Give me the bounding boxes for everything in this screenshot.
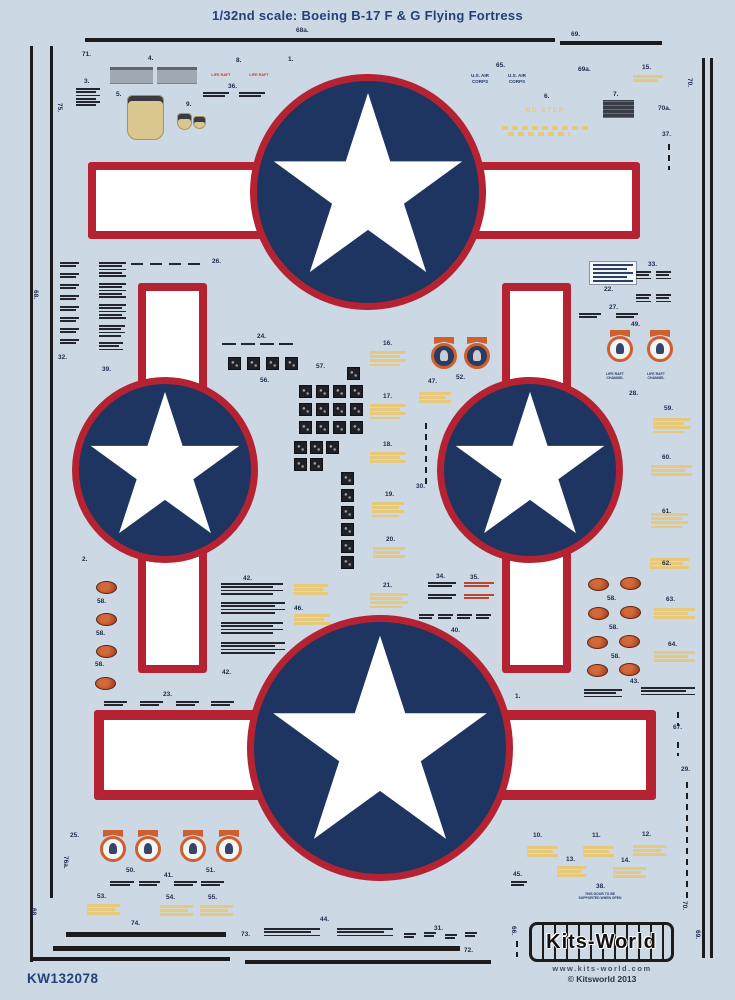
part-number-label: 35. [470,575,479,582]
part-number-label: 5. [116,92,121,99]
yellow-stencil-block [527,846,558,859]
black-square-decal [341,506,354,519]
yellow-stencil-block [294,614,330,627]
part-number-label: 22. [604,287,613,294]
micro-text-block [465,932,477,939]
part-number-label: 49. [631,322,640,329]
trim-line [50,46,53,898]
life-ring-emblem [646,330,674,368]
life-ring-emblem [606,330,634,368]
black-square-decal [285,357,298,370]
sheet-code: KW132078 [27,971,99,986]
yellow-stencil-block [370,593,408,610]
part-number-label: 24. [257,334,266,341]
part-number-label: 33. [648,262,657,269]
part-number-label: 16. [383,341,392,348]
part-number-label: 38. [596,884,605,891]
life-ring-emblem [430,337,458,375]
decal-oval [620,577,641,590]
tan-decal-rect [177,113,192,130]
life-ring-emblem [99,830,127,868]
micro-text-block [424,932,436,939]
part-number-label: 20. [386,537,395,544]
black-square-decal [350,385,363,398]
stencil-text: LIFE RAFT CHANNEL [639,372,673,380]
part-number-label: 66. [510,926,517,935]
micro-text-block [110,881,134,888]
tan-decal-rect [127,95,164,140]
black-square-decal [316,421,329,434]
micro-text-block [222,343,236,346]
part-number-label: 68a. [296,28,309,35]
gray-decal-rect [110,67,153,84]
part-number-label: 51. [206,868,215,875]
micro-text-block [264,928,320,938]
trim-line [560,41,662,45]
part-number-label: 44. [320,917,329,924]
part-number-label: 1. [288,57,293,64]
stencil-text: THIS DOOR TO BE SUPPORTED WHEN OPEN [562,892,638,900]
part-number-label: 32. [58,355,67,362]
decal-oval [96,581,117,594]
part-number-label: 60. [662,455,671,462]
micro-text-block [438,614,453,621]
yellow-stencil-block [613,867,646,880]
micro-text-block [201,881,224,888]
part-number-label: 11. [592,833,601,840]
gray-decal-rect [157,67,197,84]
black-square-decal [341,556,354,569]
yellow-stencil-block [370,351,406,368]
part-number-label: 42. [222,670,231,677]
micro-text-block [60,328,79,335]
black-square-decal [299,385,312,398]
trim-line [245,960,491,964]
micro-text-block [169,263,181,266]
micro-text-block [428,594,456,601]
trim-line [66,932,226,937]
black-square-decal [294,441,307,454]
insignia-star [262,630,498,866]
black-square-decal [326,441,339,454]
black-square-decal [310,441,323,454]
part-number-label: 58. [95,662,104,669]
part-number-label: 74. [131,921,140,928]
micro-text-block [176,701,199,708]
micro-text-block [99,304,126,320]
black-square-decal [266,357,279,370]
kitsworld-logo: Kits-World [529,922,674,962]
part-number-label: 42. [243,576,252,583]
part-number-label: 70. [686,78,693,87]
part-number-label: 67. [673,725,682,732]
part-number-label: 47. [428,379,437,386]
trim-line [702,58,705,958]
micro-text-block [150,263,162,266]
black-square-decal [316,385,329,398]
micro-text-block [60,306,79,313]
decal-oval [588,607,609,620]
yellow-stencil-block [370,404,406,421]
black-square-decal [294,458,307,471]
decal-oval [96,645,117,658]
yellow-stencil-block [373,547,405,560]
yellow-stencil-block [651,465,692,478]
part-number-label: 17. [383,394,392,401]
part-number-label: 25. [70,833,79,840]
micro-text-block [99,283,126,299]
part-number-label: 6. [544,94,549,101]
part-number-label: 52. [456,375,465,382]
yellow-stencil-block [372,502,404,519]
trim-line [53,946,460,951]
part-number-label: 53. [97,894,106,901]
black-square-decal [316,403,329,416]
micro-text-block [636,271,651,281]
part-number-label: 56. [260,378,269,385]
micro-text-block [76,88,100,108]
micro-text-block [60,339,79,346]
micro-text-block [60,262,79,269]
decal-oval [587,664,608,677]
micro-text-block [99,262,126,278]
part-number-label: 37. [662,132,671,139]
part-number-label: 10. [533,833,542,840]
black-square-decal [299,421,312,434]
part-number-label: 43. [630,679,639,686]
part-number-label: 64. [668,642,677,649]
part-number-label: 55. [208,895,217,902]
trim-line [33,957,230,961]
part-number-label: 15. [642,65,651,72]
part-number-label: 72. [464,948,473,955]
black-square-decal [299,403,312,416]
part-number-label: 58. [609,625,618,632]
part-number-label: 26. [212,259,221,266]
micro-text-block [188,263,200,266]
dashed-trim-line [425,423,427,487]
black-square-decal [341,472,354,485]
part-number-label: 30. [416,484,425,491]
dashed-trim-line [668,144,670,170]
part-number-label: 21. [383,583,392,590]
part-number-label: 59. [664,406,673,413]
black-square-decal [341,489,354,502]
micro-text-block [464,582,494,589]
micro-text-block [656,294,671,304]
part-number-label: 36. [228,84,237,91]
part-number-label: 58. [607,596,616,603]
part-number-label: 28. [629,391,638,398]
micro-text-block [60,295,79,302]
micro-text-block [656,271,671,281]
stencil-text: NO STEP [517,107,573,115]
insignia-star [448,388,612,552]
black-square-decal [333,403,346,416]
part-number-label: 14. [621,858,630,865]
stencil-text: U.S. AIR CORPS [499,73,535,84]
yellow-stencil-block [87,904,120,917]
yellow-stencil-block [653,418,690,435]
part-number-label: 65. [496,63,505,70]
micro-text-block [221,583,283,596]
yellow-stencil-block [651,513,688,530]
black-square-decal [228,357,241,370]
micro-text-block [211,701,234,708]
micro-text-block [337,928,393,938]
micro-text-block [457,614,472,621]
micro-text-block [641,687,695,697]
yellow-stencil-block [654,651,695,664]
micro-text-block [140,701,163,708]
part-number-label: 4. [148,56,153,63]
black-square-decal [350,421,363,434]
part-number-label: 63. [666,597,675,604]
part-number-label: 76a. [62,856,69,869]
sheet-title: 1/32nd scale: Boeing B-17 F & G Flying F… [0,8,735,23]
micro-text-block [60,273,79,280]
micro-text-block [139,881,160,888]
part-number-label: 34. [436,574,445,581]
yellow-stencil-block [294,584,328,597]
part-number-label: 29. [681,767,690,774]
trim-line [710,58,713,958]
micro-text-block [260,343,274,346]
yellow-stencil-block [633,75,663,83]
black-square-decal [341,523,354,536]
micro-text-block [99,325,125,338]
part-number-label: 3. [84,79,89,86]
part-number-label: 69. [694,930,701,939]
micro-text-block [60,317,79,324]
stencil-text: LIFE RAFT CHANNEL [598,372,632,380]
dashed-trim-line [516,941,518,957]
dashed-trim-line [508,132,570,136]
decal-oval [620,606,641,619]
dark-decal-rect [603,100,634,118]
part-number-label: 58. [97,599,106,606]
insignia-star [83,388,247,552]
part-number-label: 73. [241,932,250,939]
part-number-label: 45. [513,872,522,879]
part-number-label: 46. [294,606,303,613]
part-number-label: 62. [662,561,671,568]
decal-oval [588,578,609,591]
yellow-stencil-block [370,452,406,465]
yellow-stencil-block [583,846,614,859]
trim-line [30,46,33,962]
micro-text-block [241,343,255,346]
micro-text-block [104,701,127,708]
part-number-label: 69. [571,32,580,39]
yellow-stencil-block [200,905,233,918]
life-ring-emblem [215,830,243,868]
micro-text-block [203,92,229,99]
yellow-stencil-block [160,905,193,918]
tan-decal-rect [193,116,206,129]
part-number-label: 2. [82,557,87,564]
part-number-label: 57. [316,364,325,371]
part-number-label: 8. [236,58,241,65]
yellow-stencil-block [419,392,451,405]
trim-line [85,38,555,42]
part-number-label: 50. [126,868,135,875]
yellow-stencil-block [654,608,695,621]
dashed-trim-line [502,126,590,130]
part-number-label: 58. [611,654,620,661]
part-number-label: 61. [662,509,671,516]
white-decal-rect [589,261,637,285]
part-number-label: 23. [163,692,172,699]
black-square-decal [333,421,346,434]
stencil-text: LIFE RAFT [242,73,276,78]
part-number-label: 27. [609,305,618,312]
part-number-label: 68. [30,908,37,917]
micro-text-block [60,284,79,291]
black-square-decal [347,367,360,380]
micro-text-block [464,594,494,601]
micro-text-block [445,934,457,941]
black-square-decal [247,357,260,370]
micro-text-block [579,313,601,320]
part-number-label: 70. [681,901,688,910]
stencil-text: LIFE RAFT [204,73,238,78]
decal-oval [619,635,640,648]
yellow-stencil-block [633,845,666,858]
decal-sheet: 1/32nd scale: Boeing B-17 F & G Flying F… [0,0,735,1000]
part-number-label: 13. [566,857,575,864]
decal-oval [587,636,608,649]
micro-text-block [476,614,491,621]
black-square-decal [310,458,323,471]
insignia-star [264,88,472,296]
micro-text-block [99,342,123,352]
life-ring-emblem [179,830,207,868]
stencil-text: U.S. AIR CORPS [462,73,498,84]
decal-oval [619,663,640,676]
part-number-label: 1. [515,694,520,701]
micro-text-block [221,642,285,655]
micro-text-block [584,689,622,699]
micro-text-block [616,313,638,320]
black-square-decal [333,385,346,398]
part-number-label: 58. [96,631,105,638]
part-number-label: 39. [102,367,111,374]
yellow-stencil-block [557,866,586,879]
part-number-label: 41. [164,873,173,880]
dashed-trim-line [677,742,679,756]
part-number-label: 70a. [658,106,671,113]
brand-copyright: © Kitsworld 2013 [531,974,673,984]
part-number-label: 71. [82,52,91,59]
part-number-label: 9. [186,102,191,109]
brand-url: www.kits-world.com [531,964,673,973]
part-number-label: 18. [383,442,392,449]
life-ring-emblem [134,830,162,868]
micro-text-block [419,614,434,621]
micro-text-block [131,263,143,266]
micro-text-block [221,602,285,615]
micro-text-block [239,92,265,99]
micro-text-block [428,582,456,589]
part-number-label: 54. [166,895,175,902]
part-number-label: 75. [56,103,63,112]
micro-text-block [174,881,197,888]
black-square-decal [350,403,363,416]
part-number-label: 68. [32,290,39,299]
part-number-label: 40. [451,628,460,635]
kitsworld-logo-text: Kits-World [546,931,657,954]
micro-text-block [636,294,651,304]
decal-oval [95,677,116,690]
micro-text-block [511,881,527,888]
part-number-label: 19. [385,492,394,499]
dashed-trim-line [686,782,688,900]
part-number-label: 12. [642,832,651,839]
micro-text-block [221,622,283,635]
part-number-label: 69a. [578,67,591,74]
black-square-decal [341,540,354,553]
micro-text-block [404,933,416,940]
part-number-label: 7. [613,92,618,99]
part-number-label: 31. [434,926,443,933]
life-ring-emblem [463,337,491,375]
decal-oval [96,613,117,626]
micro-text-block [279,343,293,346]
